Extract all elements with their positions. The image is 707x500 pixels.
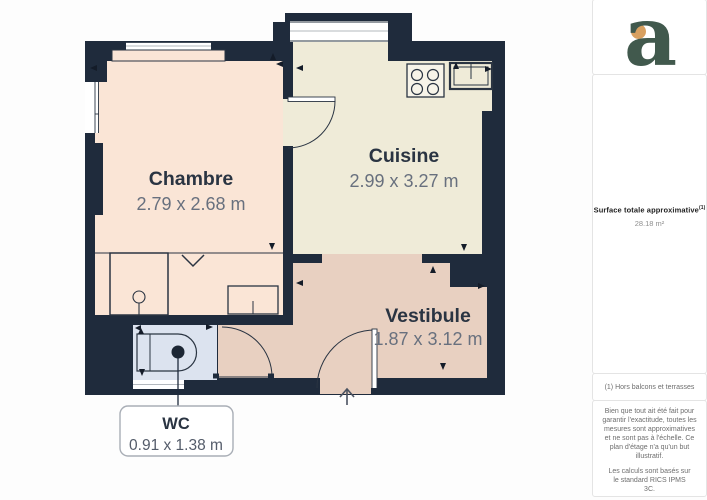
surface-total-label: Surface totale approximative(1): [593, 205, 706, 215]
surface-footnote-marker: (1): [699, 205, 705, 211]
wc-dimensions: 0.91 x 1.38 m: [129, 437, 223, 454]
surface-total-value: 28.18 m²: [593, 219, 706, 228]
footnote-text: (1) Hors balcons et terrasses: [605, 384, 695, 391]
stove: [407, 64, 444, 97]
cuisine-dimensions: 2.99 x 3.27 m: [349, 171, 458, 191]
cuisine-window: [290, 21, 388, 42]
logo-card: a: [592, 0, 707, 75]
standard-text: Les calculs sont basés sur le standard R…: [607, 468, 692, 495]
surface-card: Surface totale approximative(1) 28.18 m²: [592, 74, 707, 374]
vestibule-dimensions: 1.87 x 3.12 m: [373, 329, 482, 349]
wall-pier: [95, 143, 103, 215]
info-sidebar: a Surface totale approximative(1) 28.18 …: [592, 0, 707, 500]
cuisine-name: Cuisine: [369, 145, 440, 167]
chambre-bay: [112, 50, 225, 61]
wc-leader-dot: [172, 346, 185, 359]
chambre-window: [126, 42, 211, 51]
chambre-left-window: [85, 82, 99, 133]
vestibule-name: Vestibule: [385, 305, 471, 327]
footnote-card: (1) Hors balcons et terrasses: [592, 373, 707, 401]
disclaimer-text: Bien que tout ait été fait pour garantir…: [601, 408, 698, 462]
wall-pier: [95, 61, 107, 82]
brand-logo: a: [624, 0, 677, 75]
wc-callout: WC 0.91 x 1.38 m: [120, 406, 233, 456]
chambre-dimensions: 2.79 x 2.68 m: [136, 194, 245, 214]
wc-window: [133, 380, 184, 389]
legal-card: Bien que tout ait été fait pour garantir…: [592, 400, 707, 497]
wc-name: WC: [162, 415, 190, 433]
floorplan-page: WC 0.91 x 1.38 m Chambre 2.79 x 2.68 m C…: [0, 0, 707, 500]
chambre-name: Chambre: [149, 168, 234, 190]
